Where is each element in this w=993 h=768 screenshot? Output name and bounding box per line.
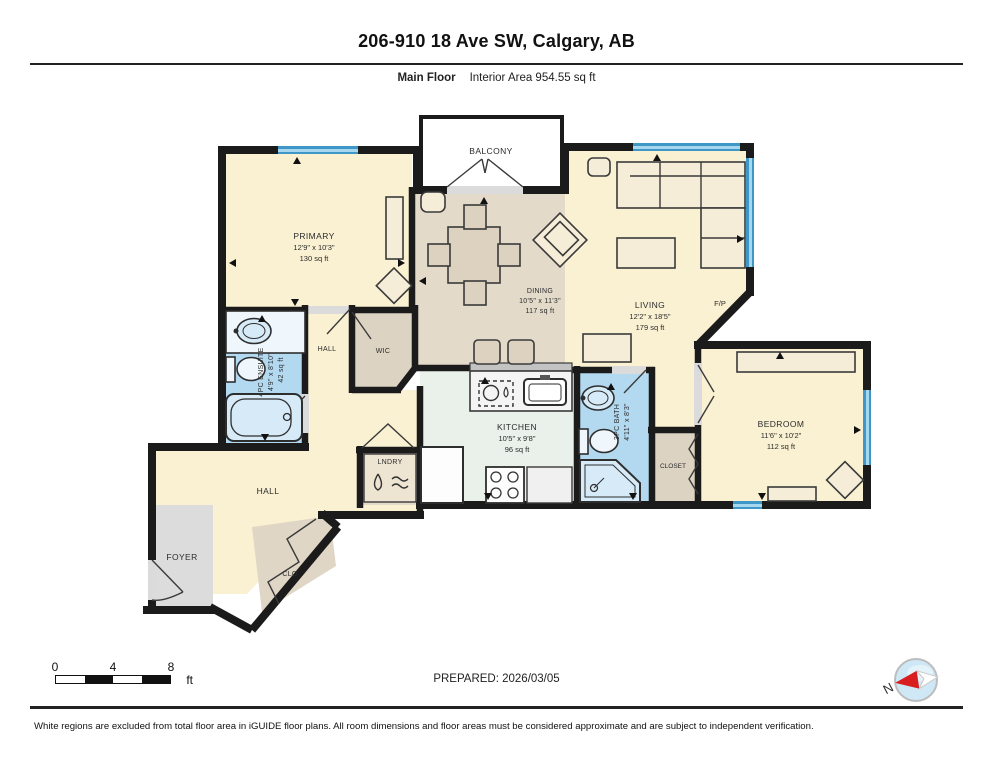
closet-label: CLOSET	[660, 463, 686, 470]
primary-label: PRIMARY	[293, 231, 334, 241]
dining-table	[448, 227, 500, 283]
clo-label: CLO	[282, 571, 298, 578]
bedroom-dresser	[737, 352, 855, 372]
fireplace-label: F/P	[714, 299, 726, 308]
primary-dresser	[386, 197, 403, 259]
stove	[486, 467, 524, 503]
dining-side-table	[421, 192, 445, 212]
compass: N	[872, 652, 950, 710]
ensuite-label: 4PC ENSUITE	[258, 347, 265, 396]
disclaimer-text: White regions are excluded from total fl…	[34, 721, 973, 732]
kitchen-label: KITCHEN	[497, 422, 537, 432]
ensuite-toilet-tank	[226, 357, 235, 382]
ensuite-area: 42 sq ft	[278, 357, 285, 382]
bar-stool-1	[474, 340, 500, 364]
living-side-table	[588, 158, 610, 176]
dining-chair-left	[428, 244, 450, 266]
bar-stool-2	[508, 340, 534, 364]
kitchen-counter-2	[527, 467, 572, 503]
laundry-label: LNDRY	[377, 459, 402, 466]
dining-chair-right	[498, 244, 520, 266]
kitchen-area: 96 sq ft	[505, 445, 531, 454]
compass-n-label: N	[880, 679, 895, 697]
bath-toilet-tank	[579, 429, 588, 454]
bath-label: 3PC BATH	[614, 404, 621, 440]
dining-chair-top	[464, 205, 486, 229]
coffee-table	[617, 238, 675, 268]
kitchen-dims: 10'5" x 9'8"	[499, 434, 536, 443]
ensuite-sink	[237, 319, 271, 344]
floorplan-page: 206-910 18 Ave SW, Calgary, AB Main Floo…	[0, 0, 993, 768]
hall-lower-label: HALL	[257, 486, 280, 496]
clo-floor	[252, 516, 336, 612]
dining-dims: 10'5" x 11'3"	[519, 298, 561, 305]
bedroom-dims: 11'6" x 10'2"	[761, 431, 802, 440]
primary-window	[278, 146, 358, 154]
scale-tick-4: 4	[110, 660, 117, 674]
living-right-window	[746, 158, 754, 267]
foyer-label: FOYER	[166, 552, 197, 562]
dining-area: 117 sq ft	[525, 308, 554, 315]
dining-label: DINING	[527, 288, 553, 295]
tv-stand	[583, 334, 631, 362]
bedroom-area: 112 sq ft	[767, 442, 796, 451]
fridge	[421, 447, 463, 503]
primary-area: 130 sq ft	[300, 254, 330, 263]
bedroom-right-window	[863, 390, 871, 465]
living-top-window	[633, 143, 740, 151]
footer-divider	[30, 706, 963, 709]
primary-dims: 12'9" x 10'3"	[293, 243, 334, 252]
dining-chair-bottom	[464, 281, 486, 305]
hall-upper-label: HALL	[318, 346, 337, 353]
living-label: LIVING	[635, 300, 665, 310]
living-area: 179 sq ft	[636, 323, 666, 332]
floor-plan-svg: BALCONY PRIMARY 12'9" x 10'3" 130 sq ft …	[0, 0, 993, 768]
wic-label: WIC	[376, 348, 391, 355]
hall-upper-floor	[305, 308, 352, 447]
bedroom-label: BEDROOM	[758, 419, 805, 429]
living-dims: 12'2" x 18'5"	[629, 312, 670, 321]
scale-tick-8: 8	[168, 660, 175, 674]
ensuite-dims: 4'9" x 8'10"	[268, 353, 275, 391]
bath-dims: 4'11" x 8'3"	[624, 403, 631, 441]
prepared-date: PREPARED: 2026/03/05	[0, 673, 993, 685]
bedroom-bench	[768, 487, 816, 501]
bedroom-bottom-window	[733, 501, 762, 509]
hall-mid-floor	[352, 390, 420, 447]
balcony-label: BALCONY	[469, 146, 512, 156]
scale-tick-0: 0	[52, 660, 59, 674]
